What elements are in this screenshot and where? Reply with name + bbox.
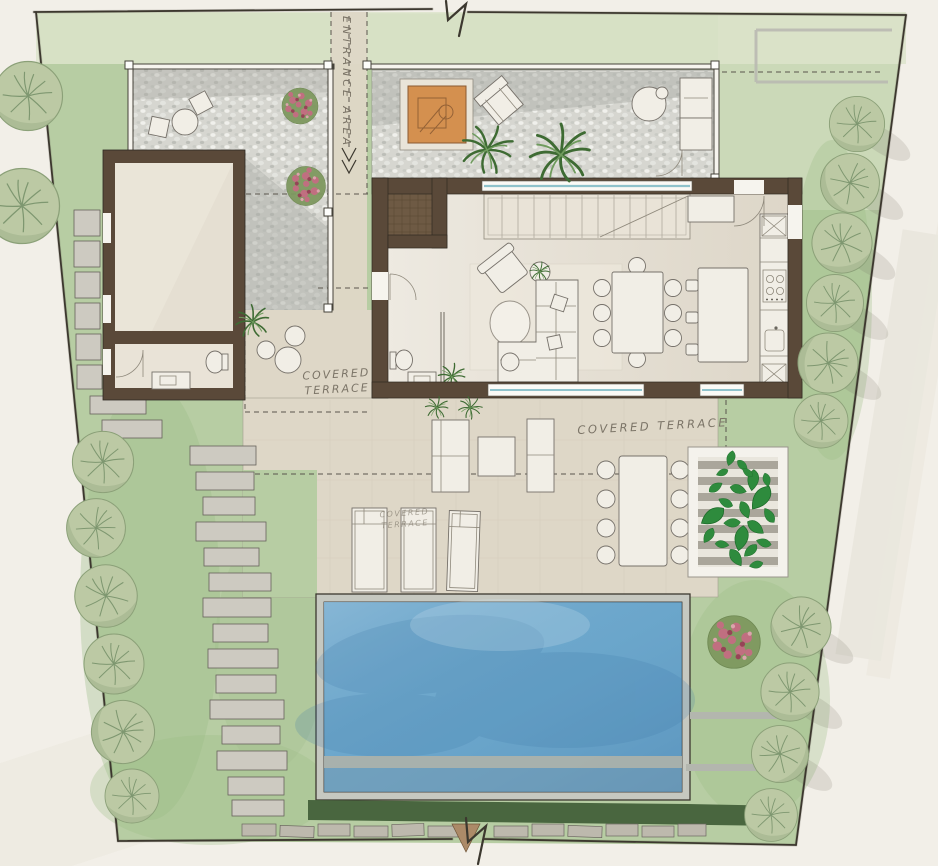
site-plan: ENTRANCE AREA COVERED TERRACE COVERED TE… — [0, 0, 938, 866]
orange-art-piece — [408, 86, 466, 143]
tree — [745, 789, 798, 842]
tree — [72, 431, 133, 492]
covered-terrace-label-left: COVERED TERRACE — [294, 365, 379, 399]
plant-side-table — [530, 262, 550, 282]
covered-terrace-left-line1: COVERED — [302, 366, 370, 383]
storage-unit — [680, 78, 712, 150]
tree — [105, 769, 159, 823]
sun-lounger — [447, 511, 481, 592]
outdoor-coffee-table — [478, 437, 515, 476]
tree — [794, 394, 848, 448]
tree — [0, 62, 63, 131]
main-house — [372, 150, 802, 398]
flower-bush — [708, 616, 761, 669]
pergola — [688, 447, 788, 577]
tree — [761, 663, 819, 721]
plan-canvas — [0, 0, 938, 866]
tree — [807, 275, 864, 332]
tree — [84, 634, 144, 694]
stairs — [484, 194, 690, 239]
tree — [829, 96, 884, 151]
kitchen-island — [686, 268, 748, 362]
covered-terrace-label-small: COVERED TERRACE — [371, 505, 438, 532]
pool-step — [324, 756, 682, 768]
dining-table — [612, 272, 663, 353]
left-building — [103, 150, 245, 400]
coffee-table — [490, 301, 530, 345]
flower-bush — [282, 88, 318, 124]
pool — [295, 594, 695, 800]
covered-terrace-small-line2: TERRACE — [381, 518, 429, 530]
entrance-area-label: ENTRANCE AREA — [340, 16, 353, 148]
covered-terrace-left-line2: TERRACE — [304, 381, 370, 397]
outdoor-dining-table — [619, 456, 667, 566]
